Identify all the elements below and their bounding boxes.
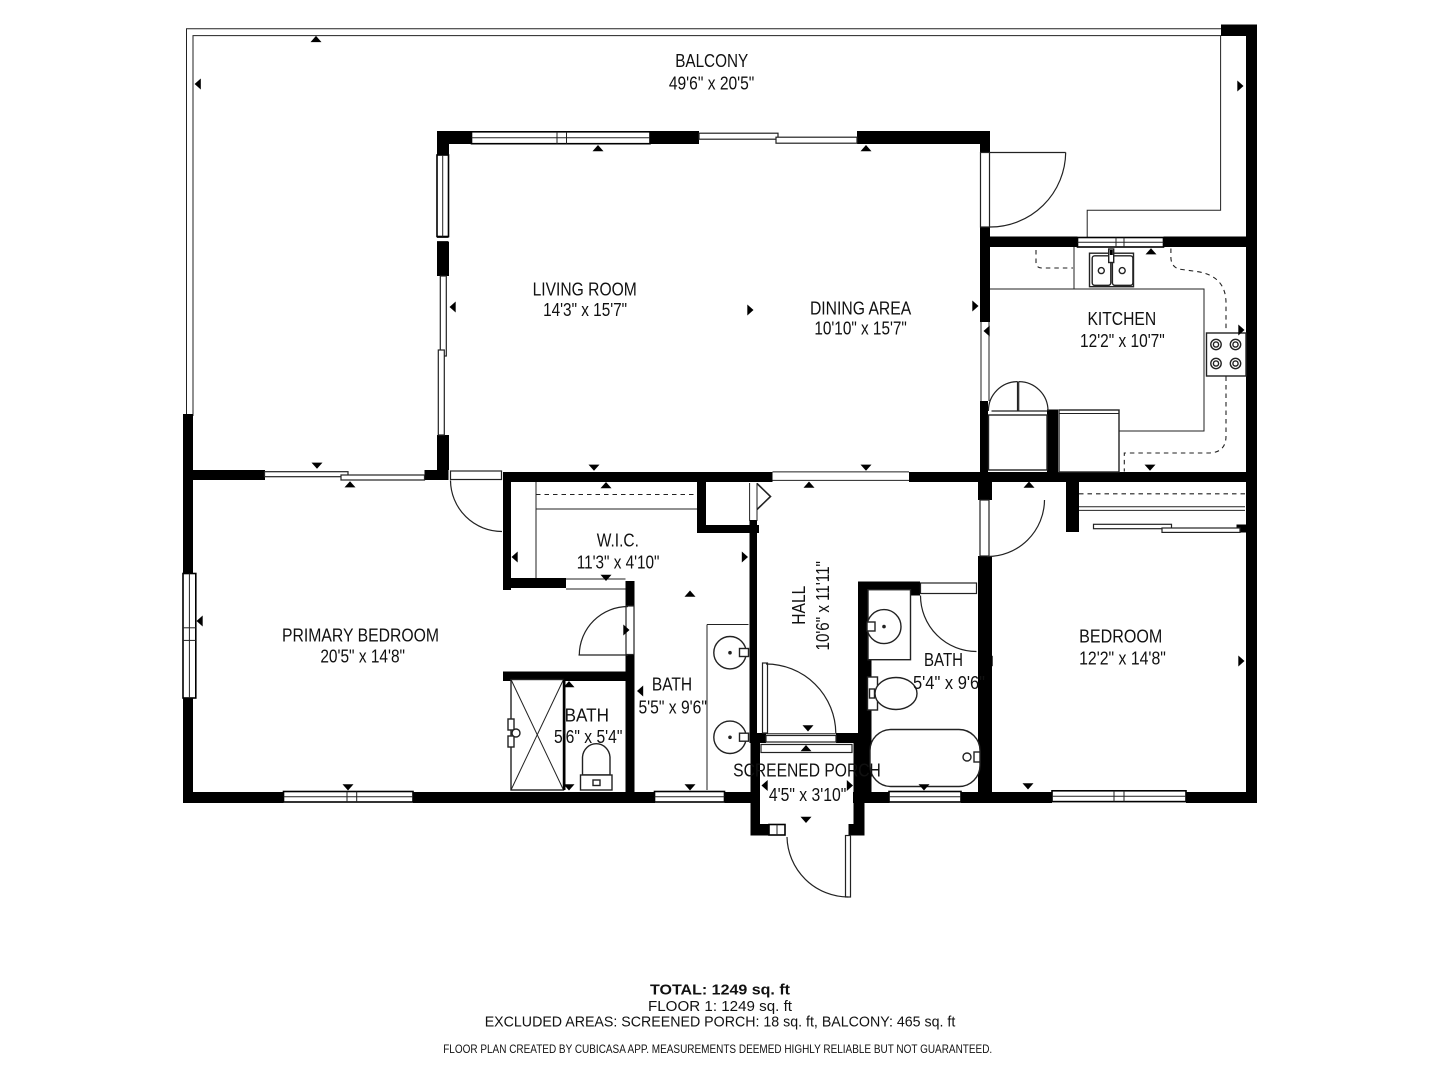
- svg-text:EXCLUDED AREAS: SCREENED PORCH: EXCLUDED AREAS: SCREENED PORCH: 18 sq. f…: [485, 1014, 956, 1031]
- svg-text:BALCONY: BALCONY: [675, 51, 748, 71]
- svg-text:DINING AREA: DINING AREA: [810, 299, 911, 319]
- svg-text:5'4" x 9'6": 5'4" x 9'6": [913, 673, 985, 693]
- svg-text:5'6" x 5'4": 5'6" x 5'4": [554, 727, 623, 747]
- svg-text:4'5" x 3'10": 4'5" x 3'10": [769, 785, 846, 805]
- svg-text:HALL: HALL: [789, 586, 809, 625]
- svg-text:BATH: BATH: [924, 650, 963, 670]
- svg-text:14'3" x 15'7": 14'3" x 15'7": [543, 300, 627, 320]
- svg-text:SCREENED PORCH: SCREENED PORCH: [733, 761, 881, 781]
- svg-text:BATH: BATH: [652, 675, 692, 695]
- svg-text:LIVING ROOM: LIVING ROOM: [533, 280, 637, 300]
- svg-text:TOTAL: 1249 sq. ft: TOTAL: 1249 sq. ft: [650, 982, 790, 999]
- svg-text:BEDROOM: BEDROOM: [1079, 627, 1162, 647]
- svg-text:12'2" x 14'8": 12'2" x 14'8": [1079, 648, 1166, 668]
- svg-text:FLOOR 1: 1249 sq. ft: FLOOR 1: 1249 sq. ft: [648, 998, 793, 1015]
- svg-text:11'3" x 4'10": 11'3" x 4'10": [577, 553, 660, 573]
- svg-text:12'2" x 10'7": 12'2" x 10'7": [1080, 331, 1165, 351]
- svg-text:FLOOR PLAN CREATED BY CUBICASA: FLOOR PLAN CREATED BY CUBICASA APP. MEAS…: [443, 1042, 992, 1056]
- svg-text:BATH: BATH: [565, 706, 609, 726]
- svg-text:PRIMARY BEDROOM: PRIMARY BEDROOM: [282, 626, 439, 646]
- svg-text:W.I.C.: W.I.C.: [597, 530, 639, 550]
- svg-text:10'10" x 15'7": 10'10" x 15'7": [814, 319, 907, 339]
- svg-text:KITCHEN: KITCHEN: [1087, 309, 1156, 329]
- svg-text:20'5" x 14'8": 20'5" x 14'8": [320, 647, 405, 667]
- svg-text:49'6" x 20'5": 49'6" x 20'5": [669, 73, 755, 93]
- svg-text:5'5" x 9'6": 5'5" x 9'6": [638, 698, 707, 718]
- svg-text:10'6" x 11'11": 10'6" x 11'11": [813, 561, 833, 650]
